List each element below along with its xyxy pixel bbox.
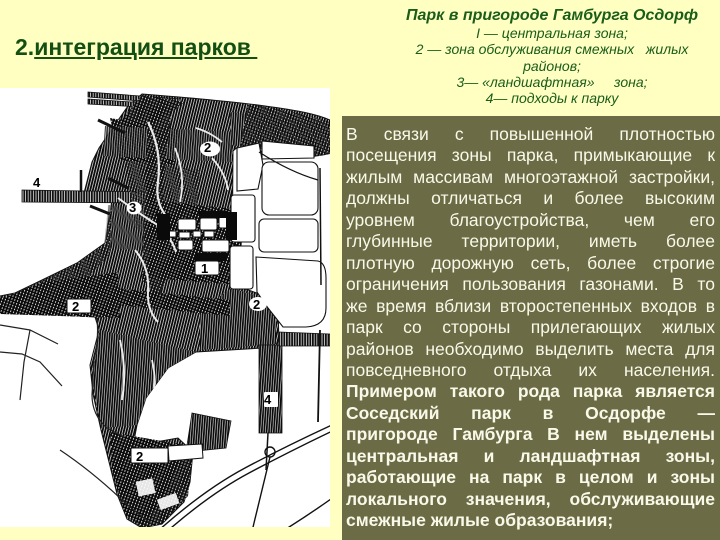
svg-text:1: 1: [201, 261, 208, 276]
svg-text:2: 2: [72, 299, 79, 314]
svg-text:2: 2: [253, 297, 260, 312]
svg-text:2: 2: [136, 449, 143, 464]
svg-text:2: 2: [204, 140, 211, 155]
svg-text:4: 4: [264, 392, 272, 407]
svg-text:4: 4: [33, 175, 41, 190]
svg-text:3: 3: [129, 200, 136, 215]
